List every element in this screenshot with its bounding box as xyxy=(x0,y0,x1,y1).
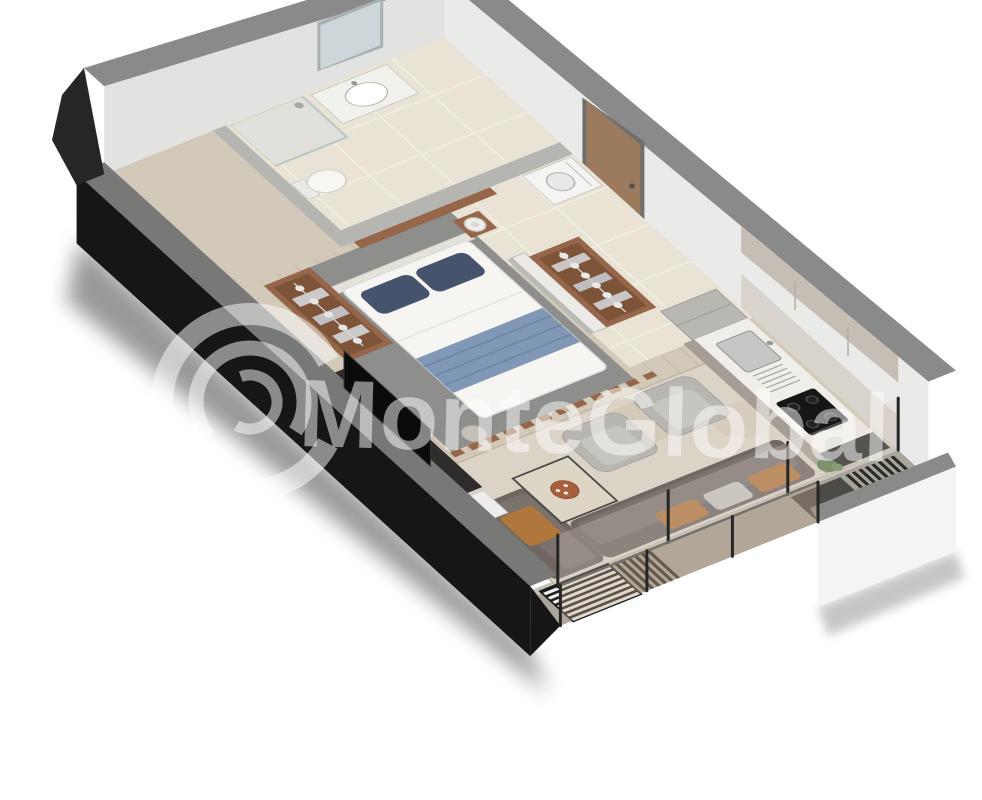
watermark-text: MonteGlobal xyxy=(297,360,892,482)
west-corner-wall xyxy=(52,68,104,185)
floorplan-render: MonteGlobal xyxy=(0,0,982,800)
apartment-3d-scene: MonteGlobal xyxy=(0,0,982,800)
door-handle-icon xyxy=(629,183,635,189)
